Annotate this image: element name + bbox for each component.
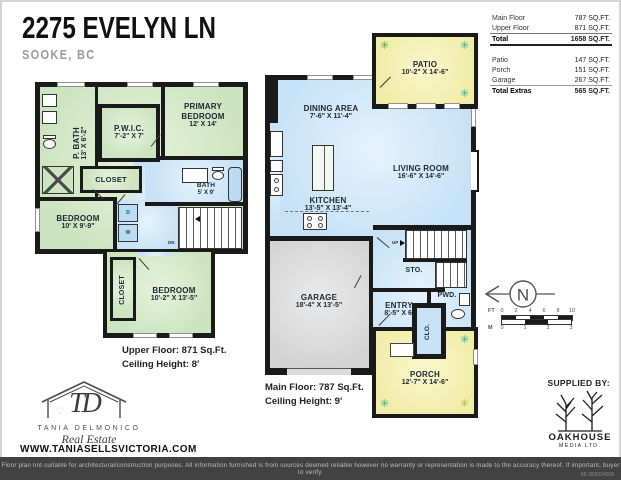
room-label: PRIMARY BEDROOM [170,102,236,121]
room-powder: PWD. [433,291,461,301]
entry-step [390,343,414,357]
room-dims: 16'-6" X 14'-6" [398,173,445,182]
bay-window [471,150,479,192]
oakhouse-trees-icon [548,388,612,432]
room-dims: 10'-2" X 13'-5" [151,295,198,304]
room-dining: DINING AREA 7'-6" X 11'-4" [293,101,369,125]
window [133,333,157,338]
footer-disclaimer-bar: Floor plan not suitable for architectura… [0,457,621,480]
plant-icon: ✳ [460,89,469,100]
floor-plan-sheet: 2275 EVELYN LN SOOKE, BC Main Floor787 S… [0,0,621,480]
room-dims: 10'-2" X 14'-6" [402,69,449,78]
window [444,103,460,109]
room-dims: 5' X 9' [198,190,215,198]
window [353,75,373,80]
agent-logo: TD ♡ TANIA DELMONICO Real Estate [24,374,154,447]
row-value: 1658 SQ.FT. [571,36,610,43]
row-value: 267 SQ.FT. [575,77,610,84]
room-garage-label: GARAGE 18'-4" X 13'-5" [275,289,363,315]
row-label: Patio [492,57,508,64]
row-value: 147 SQ.FT. [575,57,610,64]
hall-opening [138,252,172,256]
room-label: PORCH [410,370,440,380]
room-bedroom-lower: BEDROOM 10'-2" X 13'-5" [137,276,211,314]
table-row: Porch151 SQ.FT. [490,65,612,75]
plant-icon: ✳ [460,41,469,52]
room-label: CLOSET [95,175,127,184]
room-label: PATIO [413,60,437,70]
garage-door [287,368,351,375]
room-label: BATH [197,182,215,190]
window [169,333,193,338]
stairs-up-label: UP [392,240,398,245]
room-pwic: P.W.I.C. 7'-2" X 7' [98,104,160,162]
wall [40,197,117,201]
table-row: Patio147 SQ.FT. [490,55,612,65]
supplier-logo: OAKHOUSE MEDIA LTD. [540,388,620,449]
row-label: Total [492,36,508,43]
stairs-arrow [195,216,200,222]
row-label: Total Extras [492,88,532,95]
plant-icon: ✳ [380,41,389,52]
agent-name: TANIA DELMONICO [24,425,154,432]
stairs-up-return [435,262,467,288]
room-label: DINING AREA [304,104,359,114]
room-closet-main: CLO. [412,303,446,359]
window [473,349,478,365]
table-row: Garage267 SQ.FT. [490,75,612,86]
room-primary-bedroom: PRIMARY BEDROOM 12' X 14' [165,96,241,136]
supplier-name: OAKHOUSE [540,432,620,443]
room-dims: 7'-2" X 7' [114,133,143,142]
window [193,82,219,87]
stairs-up [405,230,467,259]
room-label: PWD. [437,292,456,300]
table-row-total: Total1658 SQ.FT. [490,33,612,46]
heart-icon: ♡ [56,406,64,416]
room-label: P. BATH [72,127,82,159]
supplier-subname: MEDIA LTD. [540,443,620,449]
room-dims: 12'-7" X 14'-6" [402,379,449,388]
room-label: KITCHEN [310,196,347,206]
sink-icon [42,111,57,124]
room-label: BEDROOM [152,286,195,296]
room-dims: 12' X 14' [189,121,216,130]
row-label: Porch [492,67,510,74]
compass-north-label: N [517,286,529,305]
room-primary-bath-label: P. BATH 13' X 6'-2" [71,93,91,193]
row-label: Main Floor [492,15,525,22]
sink-icon [42,94,57,107]
room-label: LIVING ROOM [393,164,449,174]
disclaimer-text: Floor plan not suitable for architectura… [0,457,621,476]
room-closet-lower: CLOSET [110,257,136,321]
plant-icon: ✳ [460,399,469,410]
stairs-arrow [400,240,405,246]
shower-icon [42,166,74,194]
room-living: LIVING ROOM 16'-6" X 14'-6" [377,161,465,185]
room-dims: 7'-6" X 11'-4" [310,113,352,122]
room-label: STO. [405,267,422,275]
row-value: 787 SQ.FT. [575,15,610,22]
window [307,75,333,80]
row-value: 871 SQ.FT. [575,25,610,32]
window [416,103,436,109]
room-bath-label: BATH 5' X 9' [175,179,237,201]
scale-bar: FT 0 2 4 6 8 10 M 0 1 2 3 [488,308,588,334]
scale-bar-meters [502,320,571,324]
room-dims: 18'-4" X 13'-5" [296,302,343,311]
room-kitchen: KITCHEN 13'-5" X 13'-4" [289,193,367,217]
room-label: CLOSET [119,275,127,305]
plant-icon: ✳ [460,335,469,346]
wall-oven-icon [270,160,283,172]
toilet-icon [451,309,465,319]
upper-floor-plan: DN P.W.I.C. 7'-2" X 7' CLOSET P. BATH 13… [35,82,248,254]
table-row-total-extras: Total Extras565 SQ.FT. [490,86,612,96]
supplier-heading: SUPPLIED BY: [516,378,610,388]
room-label: BEDROOM [56,214,99,224]
room-dims: 10' X 9'-9" [61,223,94,232]
window [57,82,85,87]
wall [113,200,117,249]
scale-ft-label: FT [488,308,495,314]
agent-house-icon: TD ♡ [24,374,154,420]
toilet-icon [43,139,56,149]
caption-ceiling: Ceiling Height: 8' [122,358,227,372]
toilet-tank [212,167,224,171]
main-floor-caption: Main Floor: 787 Sq.Ft. Ceiling Height: 9… [265,381,364,409]
agent-website: WWW.TANIASELLSVICTORIA.COM [20,444,197,455]
room-porch-label: PORCH 12'-7" X 14'-6" [380,367,470,391]
area-summary-table: Main Floor787 SQ.FT. Upper Floor871 SQ.F… [490,13,612,96]
row-value: 151 SQ.FT. [575,67,610,74]
dryer-icon: D [118,204,138,222]
room-dims: 13' X 6'-2" [81,126,90,159]
window [35,208,40,232]
caption-area: Upper Floor: 871 Sq.Ft. [122,344,227,358]
row-label: Upper Floor [492,25,529,32]
room-label: CLO. [424,324,432,340]
stairs-dn-label: DN [168,240,175,245]
page-title: 2275 EVELYN LN [22,10,216,46]
wall [145,202,243,206]
room-label: ENTRY [385,301,413,311]
room-label: P.W.I.C. [114,124,144,134]
stairs-down [178,207,242,249]
plant-icon: ✳ [380,399,389,410]
range-icon [270,174,283,196]
page-subtitle: SOOKE, BC [22,47,233,62]
toilet-tank [43,135,56,139]
row-value: 565 SQ.FT. [575,88,610,95]
row-label: Garage [492,77,515,84]
washer-icon: W [118,224,138,242]
table-row: Upper Floor871 SQ.FT. [490,23,612,33]
window [127,82,153,87]
fridge-icon [270,131,283,157]
kitchen-island [312,145,334,191]
patio-block: PATIO 10'-2" X 14'-6" ✳ ✳ ✳ [372,33,478,109]
room-label: GARAGE [301,293,337,303]
room-storage: STO. [397,265,431,277]
agent-monogram: TD [69,388,102,419]
room-bedroom-left: BEDROOM 10' X 9'-9" [43,203,113,243]
header: 2275 EVELYN LN SOOKE, BC [22,10,271,62]
room-patio-label: PATIO 10'-2" X 14'-6" [380,57,470,81]
reference-number: MLSB9324508 [581,472,614,478]
compass-icon: N [482,276,562,312]
scale-m-label: M [488,325,493,331]
table-row: Main Floor787 SQ.FT. [490,13,612,23]
room-dims: 13'-5" X 13'-4" [305,205,352,214]
upper-floor-caption: Upper Floor: 871 Sq.Ft. Ceiling Height: … [122,344,227,372]
upper-floor-extension: CLOSET BEDROOM 10'-2" X 13'-5" [103,252,215,338]
caption-ceiling: Ceiling Height: 9' [265,395,364,409]
window [388,103,408,109]
caption-area: Main Floor: 787 Sq.Ft. [265,381,364,395]
